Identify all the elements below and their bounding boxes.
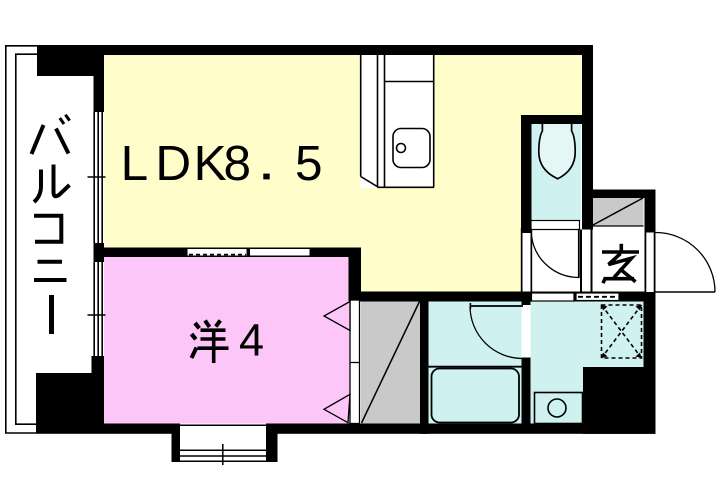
svg-text:LDK8: LDK8 — [121, 136, 251, 191]
svg-text:5: 5 — [295, 136, 323, 191]
svg-text:4: 4 — [239, 315, 264, 366]
